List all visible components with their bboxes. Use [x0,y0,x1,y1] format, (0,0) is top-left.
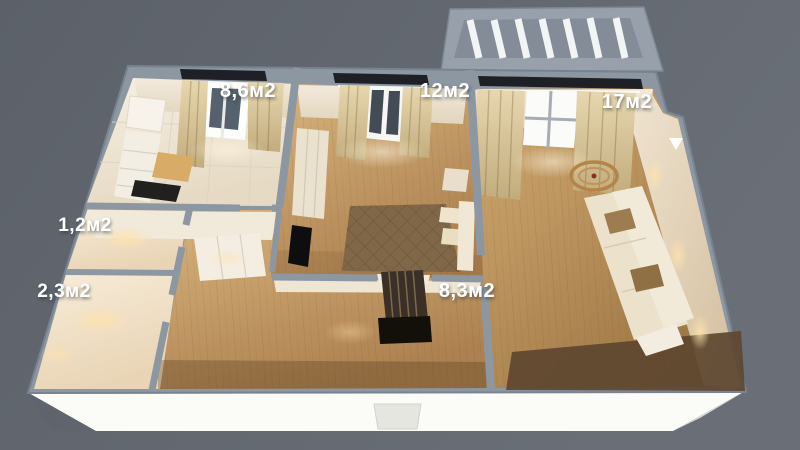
corridor-light [208,249,248,267]
living-light-pool [511,146,595,178]
living-room-area-label: 17м2 [602,91,652,113]
balcony [441,7,663,71]
kitchen-upper-cabinets [126,96,166,132]
living-wall-light-3 [690,314,710,350]
bathroom-area-label: 2,3м2 [37,281,91,302]
living-wall-light-2 [668,237,688,273]
floor-plan-render: 8,6м2 12м2 17м2 1,2м2 2,3м2 8,3м2 [0,0,800,450]
wall-wc-bathroom [66,272,178,273]
bathroom-light-2 [40,345,76,365]
kitchen-area-label: 8,6м2 [220,80,276,102]
nightstand [442,168,469,192]
bed-headboard [457,201,475,271]
wall-bedroom-south-left [272,277,377,278]
hallway-floor-shadow [158,360,491,389]
hallway-wardrobe-base [378,316,432,344]
wall-kitchen-south-stub [272,208,281,209]
kitchen-light-pool [190,136,266,164]
hallway-wardrobe [381,270,428,321]
wall-kitchen-south [86,206,240,208]
hallway-area-label: 8,3м2 [439,280,495,302]
hallway-light [324,320,376,344]
bathroom-light-1 [70,306,130,334]
tv [288,225,312,267]
living-wall-light-1 [646,158,664,192]
table-decor [592,174,597,179]
living-window-mullion-h [525,118,577,120]
entrance-door [374,404,421,429]
wc-area-label: 1,2м2 [58,215,112,236]
bedroom-window-lintel [333,73,429,85]
facade [27,390,747,431]
bedroom-light-pool [337,136,427,168]
kitchen-counter [152,152,194,182]
bedroom-wardrobe [292,128,329,219]
floor-plan-scene: 8,6м2 12м2 17м2 1,2м2 2,3м2 8,3м2 [0,0,800,450]
wall-bedroom-south-right [432,278,483,279]
bedroom-area-label: 12м2 [420,80,470,102]
wall-wc-east-1 [186,207,190,225]
